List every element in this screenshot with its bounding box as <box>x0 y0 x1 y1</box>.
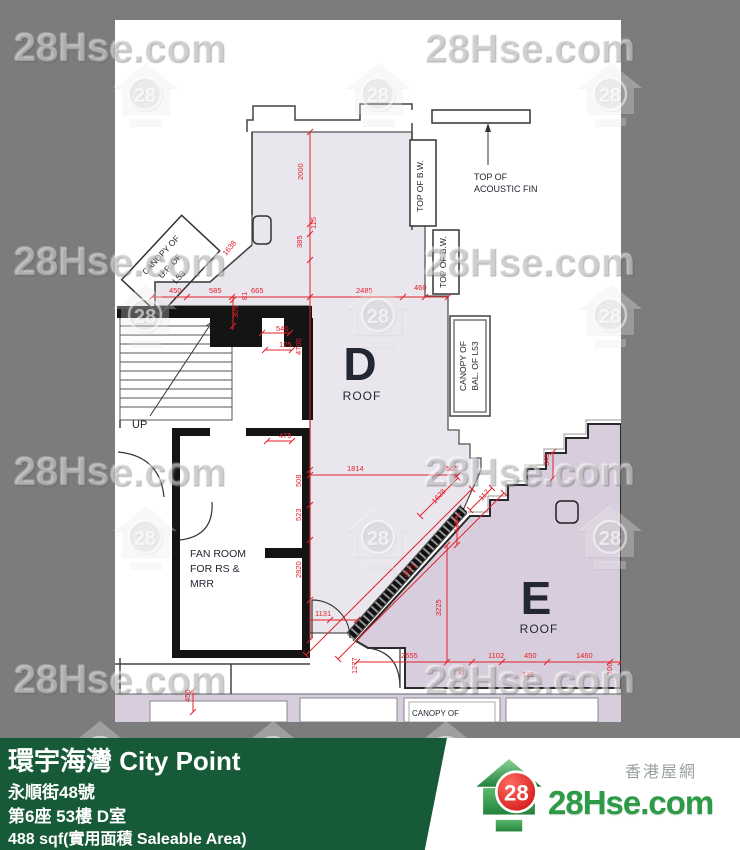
dimension-label: 508 <box>294 474 303 487</box>
dimension-label: 2000 <box>296 163 305 180</box>
plan-label: E <box>521 572 552 624</box>
floor-plan: DROOFEROOFFAN ROOMFOR RS &MRRUPTOP OFACO… <box>115 20 621 722</box>
dimension-label: 2655 <box>401 651 418 660</box>
plan-label: CANOPY OF <box>412 709 459 718</box>
plan-label: BAL. OF L53 <box>470 341 480 390</box>
plan-label: ROOF <box>343 389 382 403</box>
plan-label: ACOUSTIC FIN <box>474 184 538 194</box>
dimension-label: 1102 <box>488 651 504 660</box>
dimension-label: 475 <box>279 431 292 440</box>
dimension-label: 585 <box>209 286 222 295</box>
dimension-label: 2820 <box>294 561 303 578</box>
dimension-label: 1460 <box>576 651 593 660</box>
plan-label: FOR RS & <box>190 563 240 575</box>
brand-house-logo: 28 <box>474 758 544 832</box>
dimension-label: 305 <box>231 305 240 318</box>
house-base <box>495 819 522 832</box>
dimension-label: 450 <box>524 651 537 660</box>
dimension-label: 100 <box>605 662 614 675</box>
plan-label: TOP OF B.W. <box>438 236 448 288</box>
property-unit: 第6座 53樓 D室 <box>8 802 126 827</box>
dimension-label: 115 <box>452 520 461 532</box>
dimension-label: 505 <box>446 464 459 473</box>
dimension-label: 63 <box>457 667 466 675</box>
dimension-label: 385 <box>295 235 304 248</box>
plan-label: MRR <box>190 578 214 590</box>
dimension-label: 665 <box>251 286 264 295</box>
plan-label: D <box>343 338 376 390</box>
property-area: 488 sqf(實用面積 Saleable Area) <box>8 825 247 849</box>
dimension-label: 460 <box>414 283 427 292</box>
dimension-label: 2485 <box>356 286 373 295</box>
dimension-label: 450 <box>183 689 192 702</box>
plan-label: ROOF <box>520 622 559 636</box>
footer: 香港屋網 28 28Hse.com 環宇海灣 City Point 永順街48號… <box>0 738 740 850</box>
dimension-label: 125 <box>279 340 292 349</box>
plan-label: TOP OF B.W. <box>415 160 425 212</box>
logo-number: 28 <box>504 780 529 805</box>
dimension-label: 3225 <box>434 599 443 616</box>
dimension-label: 1277 <box>350 657 359 674</box>
dimension-label: 115 <box>309 217 318 229</box>
dimension-label: 125 <box>522 670 535 679</box>
dimension-label: 345 <box>542 453 551 466</box>
property-title: 環宇海灣 City Point <box>8 741 241 778</box>
plan-label: UP <box>132 419 147 431</box>
dimension-label: 1638 <box>221 239 239 258</box>
dimension-label: 523 <box>294 508 303 521</box>
brand-tagline: 香港屋網 <box>625 758 697 782</box>
property-address: 永順街48號 <box>8 778 95 803</box>
dimension-label: 540 <box>276 324 289 333</box>
plan-label: FAN ROOM <box>190 548 246 560</box>
dimension-label: 1131 <box>315 609 331 618</box>
plan-label: TOP OF <box>474 172 508 182</box>
dimension-label: 81 <box>240 292 249 300</box>
brand-name: 28Hse.com <box>548 784 713 822</box>
floor-plan-sheet: DROOFEROOFFAN ROOMFOR RS &MRRUPTOP OFACO… <box>115 20 621 722</box>
dimension-label: 450 <box>169 286 182 295</box>
dimension-label: 1814 <box>347 464 364 473</box>
dimension-label: 4700 <box>294 338 303 355</box>
fin-leader-arrow <box>485 123 491 165</box>
plan-label: CANOPY OF <box>458 341 468 391</box>
